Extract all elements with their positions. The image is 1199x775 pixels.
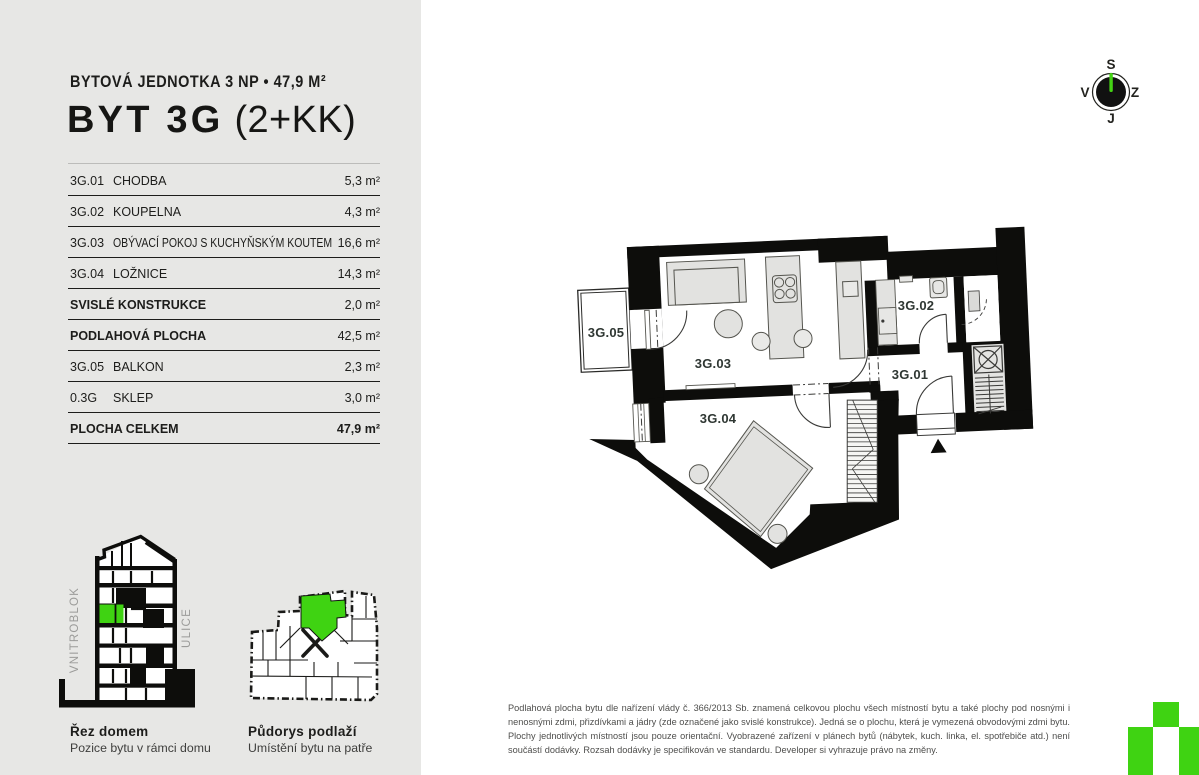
svg-text:3G.02: 3G.02 [898,298,934,313]
svg-text:3G.03: 3G.03 [695,356,731,371]
svg-text:ULICE: ULICE [181,608,193,648]
svg-text:3G.04: 3G.04 [700,411,737,426]
svg-text:Z: Z [1131,85,1139,100]
svg-text:V: V [1080,85,1089,100]
svg-text:J: J [1107,111,1115,126]
svg-text:VNITROBLOK: VNITROBLOK [69,587,81,673]
svg-text:S: S [1106,57,1115,72]
svg-text:3G.01: 3G.01 [892,367,928,382]
svg-text:3G.05: 3G.05 [588,325,624,340]
